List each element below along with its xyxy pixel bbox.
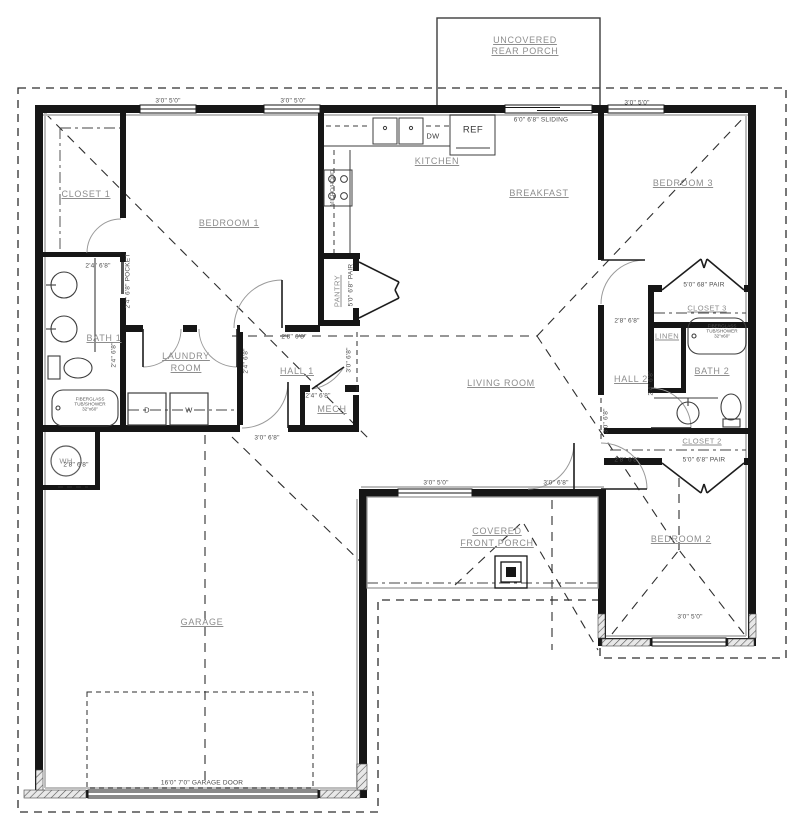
dim-bedroom2-window: 3'0" 5'0"	[677, 614, 702, 621]
dim-bedroom2-door: 2'8" 6'8"	[614, 457, 639, 464]
dryer-label: D	[144, 406, 150, 415]
room-label-kitchen: KITCHEN	[415, 156, 459, 166]
washer-label: W	[185, 406, 192, 415]
refrigerator-label: REF	[463, 125, 483, 136]
range	[324, 170, 352, 206]
door-leaves	[87, 253, 744, 493]
dim-bedroom3-door: 2'8" 6'8"	[614, 318, 639, 325]
room-label-closet3: CLOSET 3	[687, 304, 726, 313]
room-label-bath2: BATH 2	[694, 366, 729, 376]
dim-pantry-pair: 5'0" 6'8" PAIR	[348, 264, 355, 307]
room-label-bedroom3: BEDROOM 3	[653, 178, 713, 188]
room-label-garage: GARAGE	[181, 617, 224, 627]
dim-garage-entry-door: 3'0" 6'8"	[254, 435, 279, 442]
exterior-walls	[35, 105, 756, 798]
floor-plan: UNCOVERED REAR PORCH CLOSET 1 BEDROOM 1 …	[0, 0, 808, 825]
dim-bath1-door: 2'4" 6'8"	[111, 342, 118, 367]
tub2-label-3: 32"x60"	[714, 334, 730, 339]
room-label-laundry-2: ROOM	[171, 363, 202, 373]
kitchen-sink-right	[399, 118, 423, 144]
dim-hall1-opening: 3'0" 6'8"	[346, 347, 353, 372]
room-label-laundry-1: LAUNDRY	[162, 351, 210, 361]
floor-plan-drawing	[0, 0, 808, 825]
wall-faces	[43, 113, 748, 788]
bath2-toilet	[721, 394, 741, 420]
dim-bedroom1-door: 2'8" 6'8"	[281, 334, 306, 341]
room-label-bedroom2: BEDROOM 2	[651, 534, 711, 544]
interior-walls	[43, 113, 756, 490]
rear-porch-outline	[437, 18, 600, 107]
hatched-corners	[24, 614, 756, 798]
room-label-hall2: HALL 2	[614, 374, 648, 384]
room-label-closet1: CLOSET 1	[62, 189, 111, 199]
dim-bath2-door: 2'4" 6'8"	[648, 370, 655, 395]
dim-window-bedroom3: 3'0" 5'0"	[624, 100, 649, 107]
dishwasher-label: DW	[426, 132, 439, 141]
room-label-bedroom1: BEDROOM 1	[199, 218, 259, 228]
room-label-closet2: CLOSET 2	[682, 437, 721, 446]
dim-pocket-door: 2'4" 6'8" POCKET	[125, 253, 132, 308]
room-label-mech: MECH	[317, 404, 346, 414]
dim-living-window: 3'0" 5'0"	[423, 480, 448, 487]
room-label-linen: LINEN	[655, 332, 679, 341]
room-label-front-porch-2: FRONT PORCH	[460, 538, 534, 548]
room-label-breakfast: BREAKFAST	[509, 188, 568, 198]
dim-window-bedroom1-a: 3'0" 5'0"	[155, 98, 180, 105]
roof-lines	[45, 113, 746, 788]
laundry-appliances	[128, 393, 208, 425]
dim-mech-door: 2'4" 6'8"	[305, 393, 330, 400]
tub1-label-3: 32"x60"	[82, 407, 98, 412]
room-label-rear-porch-2: REAR PORCH	[491, 46, 558, 56]
cased-openings	[58, 332, 601, 788]
dim-hall2-opening: 3'0" 6'8"	[603, 408, 610, 433]
dim-closet3-pair: 5'0" 68" PAIR	[683, 282, 724, 289]
dim-closet1-door: 2'4" 6'8"	[85, 263, 110, 270]
pantry-label: PANTRY	[333, 275, 342, 307]
windows	[88, 105, 726, 798]
room-label-hall1: HALL 1	[280, 366, 314, 376]
dim-wh-door: 2'8" 6'8"	[63, 462, 88, 469]
room-label-living: LIVING ROOM	[467, 378, 535, 388]
bath1-toilet	[64, 358, 92, 378]
kitchen-sink-left	[373, 118, 397, 144]
dim-window-bedroom1-b: 3'0" 5'0"	[280, 98, 305, 105]
dim-closet2-pair: 5'0" 6'8" PAIR	[683, 457, 726, 464]
dim-laundry-door: 2'4" 6'8"	[243, 348, 250, 373]
kitchen-fittings	[324, 115, 495, 253]
micro-hood-label: MICRO/HOOD	[330, 170, 336, 206]
dim-sliding-door: 6'0" 6'8" SLIDING	[514, 117, 569, 124]
dim-garage-door: 16'0" 7'0" GARAGE DOOR	[161, 780, 243, 787]
room-label-rear-porch-1: UNCOVERED	[493, 35, 557, 45]
room-label-front-porch-1: COVERED	[472, 526, 521, 536]
dim-front-door: 3'0" 6'8"	[543, 480, 568, 487]
